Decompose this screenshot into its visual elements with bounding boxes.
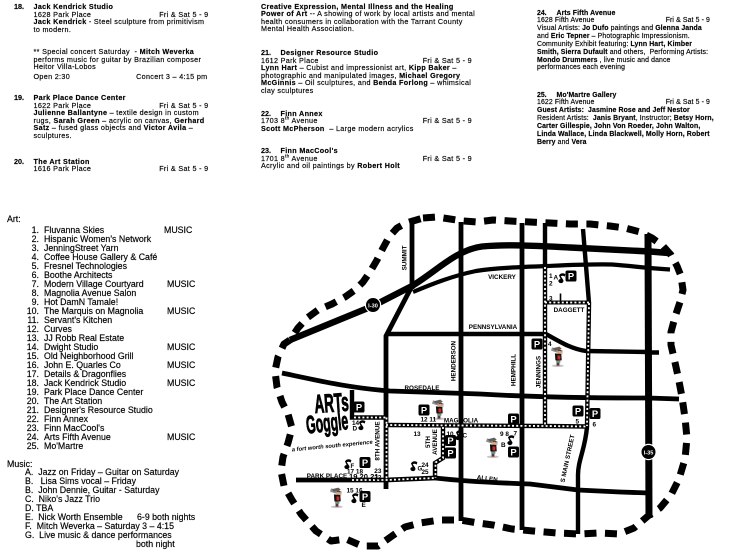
svg-text:24: 24 bbox=[422, 462, 430, 469]
svg-text:E: E bbox=[362, 502, 367, 509]
svg-text:B: B bbox=[501, 442, 506, 449]
svg-text:4: 4 bbox=[548, 341, 552, 348]
svg-text:JENNINGS: JENNINGS bbox=[536, 356, 543, 388]
svg-text:3: 3 bbox=[549, 295, 553, 302]
svg-text:5: 5 bbox=[576, 419, 580, 426]
svg-text:F: F bbox=[351, 464, 355, 470]
svg-text:VICKERY: VICKERY bbox=[488, 274, 517, 281]
svg-text:AVENUE: AVENUE bbox=[432, 429, 439, 455]
svg-text:HEMPHILL: HEMPHILL bbox=[511, 354, 518, 386]
svg-text:I-30: I-30 bbox=[368, 303, 378, 309]
svg-text:8TH AVENUE: 8TH AVENUE bbox=[375, 421, 382, 460]
svg-text:10: 10 bbox=[447, 431, 455, 438]
svg-text:7: 7 bbox=[514, 431, 518, 438]
svg-text:C: C bbox=[463, 433, 468, 440]
svg-text:PENNSYLVANIA: PENNSYLVANIA bbox=[469, 324, 518, 331]
svg-text:1: 1 bbox=[549, 273, 553, 280]
svg-text:SUMMIT: SUMMIT bbox=[402, 245, 409, 270]
svg-text:25: 25 bbox=[422, 469, 430, 476]
svg-text:5TH: 5TH bbox=[425, 436, 432, 448]
svg-text:HENDERSON: HENDERSON bbox=[451, 340, 458, 381]
svg-text:6: 6 bbox=[593, 422, 597, 429]
svg-text:9 8: 9 8 bbox=[500, 431, 509, 438]
svg-text:PARK PLACE: PARK PLACE bbox=[307, 473, 347, 480]
svg-text:ROSEDALE: ROSEDALE bbox=[405, 385, 440, 392]
svg-text:2: 2 bbox=[549, 281, 553, 288]
svg-text:Goggle: Goggle bbox=[305, 408, 350, 440]
svg-text:12 11: 12 11 bbox=[421, 417, 437, 424]
svg-text:MAGNOLIA: MAGNOLIA bbox=[444, 418, 479, 425]
svg-text:I-35: I-35 bbox=[644, 450, 654, 456]
svg-text:S MAIN STREET: S MAIN STREET bbox=[560, 434, 577, 483]
svg-text:D: D bbox=[353, 426, 358, 433]
svg-text:19 20 21: 19 20 21 bbox=[349, 472, 379, 481]
svg-text:DAGGETT: DAGGETT bbox=[554, 307, 585, 314]
svg-text:G: G bbox=[418, 467, 423, 473]
svg-text:15 16: 15 16 bbox=[347, 488, 363, 495]
svg-text:A: A bbox=[554, 275, 559, 282]
svg-text:13: 13 bbox=[414, 431, 422, 438]
svg-text:a fort worth south experience: a fort worth south experience bbox=[292, 440, 374, 454]
